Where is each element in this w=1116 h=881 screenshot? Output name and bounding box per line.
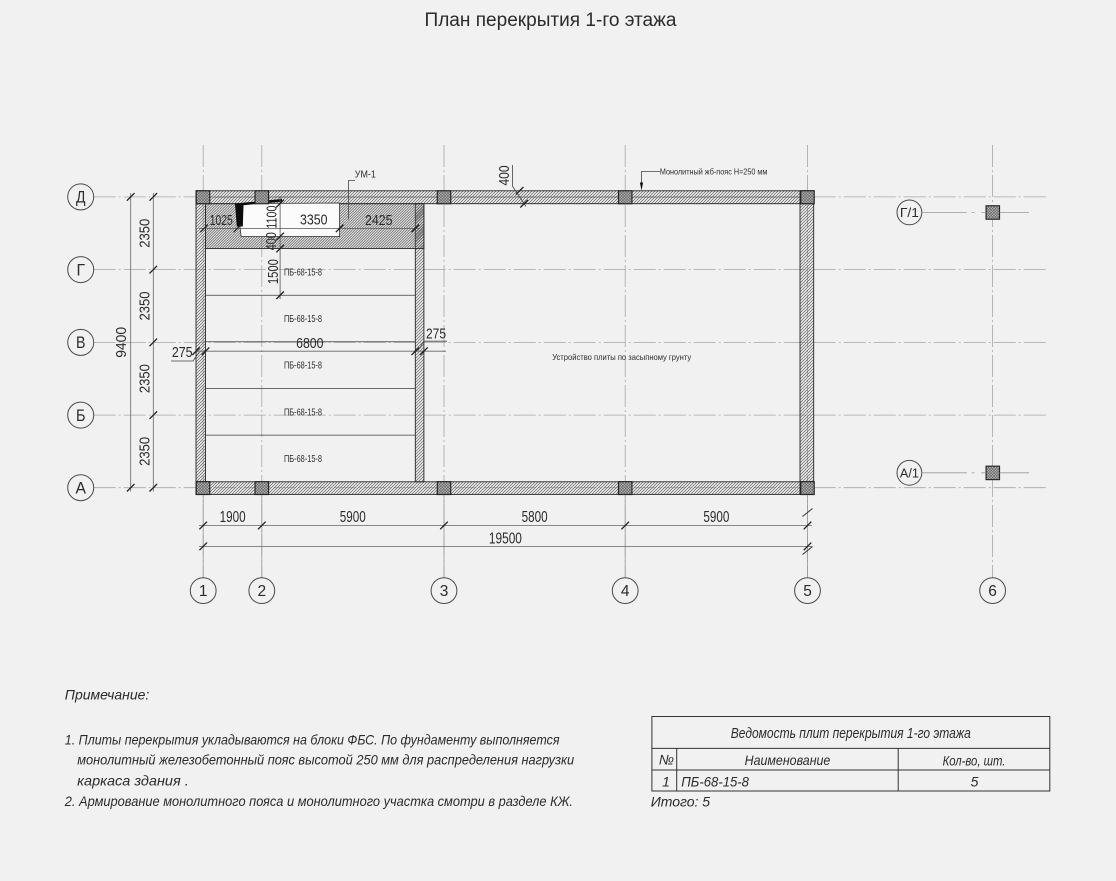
svg-text:План перекрытия 1-го этажа: План перекрытия 1-го этажа xyxy=(425,10,677,31)
svg-text:Монолитный жб-пояс Н=250 мм: Монолитный жб-пояс Н=250 мм xyxy=(660,166,768,176)
svg-text:Устройство плиты по засыпному: Устройство плиты по засыпному грунту xyxy=(552,353,692,362)
svg-text:ПБ-68-15-8: ПБ-68-15-8 xyxy=(681,774,749,790)
svg-text:Примечание:: Примечание: xyxy=(65,687,150,703)
svg-text:1025: 1025 xyxy=(210,212,233,229)
svg-text:2350: 2350 xyxy=(137,437,154,466)
svg-text:5900: 5900 xyxy=(703,509,729,526)
svg-text:19500: 19500 xyxy=(489,531,522,548)
svg-text:каркаса здания .: каркаса здания . xyxy=(77,773,189,788)
svg-text:5800: 5800 xyxy=(522,509,548,526)
svg-text:275: 275 xyxy=(426,326,446,343)
svg-text:1: 1 xyxy=(662,773,670,789)
svg-text:1500: 1500 xyxy=(265,259,282,284)
svg-text:монолитный железобетонный пояс: монолитный железобетонный пояс высотой 2… xyxy=(77,753,574,768)
svg-text:400: 400 xyxy=(263,232,280,250)
svg-text:Итого: 5: Итого: 5 xyxy=(651,794,711,810)
svg-text:ПБ-68-15-8: ПБ-68-15-8 xyxy=(284,313,322,325)
svg-text:2350: 2350 xyxy=(137,219,154,248)
svg-text:2. Армирование монолитного поя: 2. Армирование монолитного пояса и монол… xyxy=(64,794,573,809)
svg-text:1: 1 xyxy=(199,583,208,600)
svg-text:Г: Г xyxy=(76,261,85,279)
svg-text:9400: 9400 xyxy=(113,327,130,358)
svg-text:275: 275 xyxy=(172,344,193,361)
svg-text:6: 6 xyxy=(988,583,997,600)
svg-text:1900: 1900 xyxy=(220,509,246,526)
svg-text:3350: 3350 xyxy=(300,212,328,229)
svg-text:Б: Б xyxy=(76,407,86,425)
svg-text:2: 2 xyxy=(257,583,266,600)
svg-text:ПБ-68-15-8: ПБ-68-15-8 xyxy=(284,453,322,465)
svg-text:3: 3 xyxy=(440,583,449,600)
svg-text:4: 4 xyxy=(621,583,630,600)
svg-text:2350: 2350 xyxy=(137,292,154,321)
svg-text:Г/1: Г/1 xyxy=(900,206,919,220)
svg-text:А/1: А/1 xyxy=(900,466,919,480)
svg-text:1100: 1100 xyxy=(263,206,280,229)
svg-text:Д: Д xyxy=(76,189,86,207)
svg-text:А: А xyxy=(75,480,86,498)
svg-text:Кол-во, шт.: Кол-во, шт. xyxy=(943,752,1006,768)
svg-text:Ведомость плит перекрытия 1-го: Ведомость плит перекрытия 1-го этажа xyxy=(731,726,971,742)
svg-text:6800: 6800 xyxy=(296,335,323,352)
svg-text:2350: 2350 xyxy=(137,364,154,393)
svg-text:В: В xyxy=(76,334,86,352)
svg-text:400: 400 xyxy=(496,165,513,185)
svg-text:ПБ-68-15-8: ПБ-68-15-8 xyxy=(284,406,322,418)
svg-text:УМ-1: УМ-1 xyxy=(355,169,376,181)
svg-text:ПБ-68-15-8: ПБ-68-15-8 xyxy=(284,360,322,372)
svg-text:1. Плиты перекрытия укладывают: 1. Плиты перекрытия укладываются на блок… xyxy=(65,732,560,747)
svg-text:Наименование: Наименование xyxy=(745,752,831,768)
svg-text:ПБ-68-15-8: ПБ-68-15-8 xyxy=(284,267,322,279)
svg-text:5900: 5900 xyxy=(340,509,366,526)
svg-text:5: 5 xyxy=(971,773,979,789)
svg-text:5: 5 xyxy=(803,583,812,600)
svg-text:№: № xyxy=(659,751,674,767)
svg-text:2425: 2425 xyxy=(365,212,393,229)
